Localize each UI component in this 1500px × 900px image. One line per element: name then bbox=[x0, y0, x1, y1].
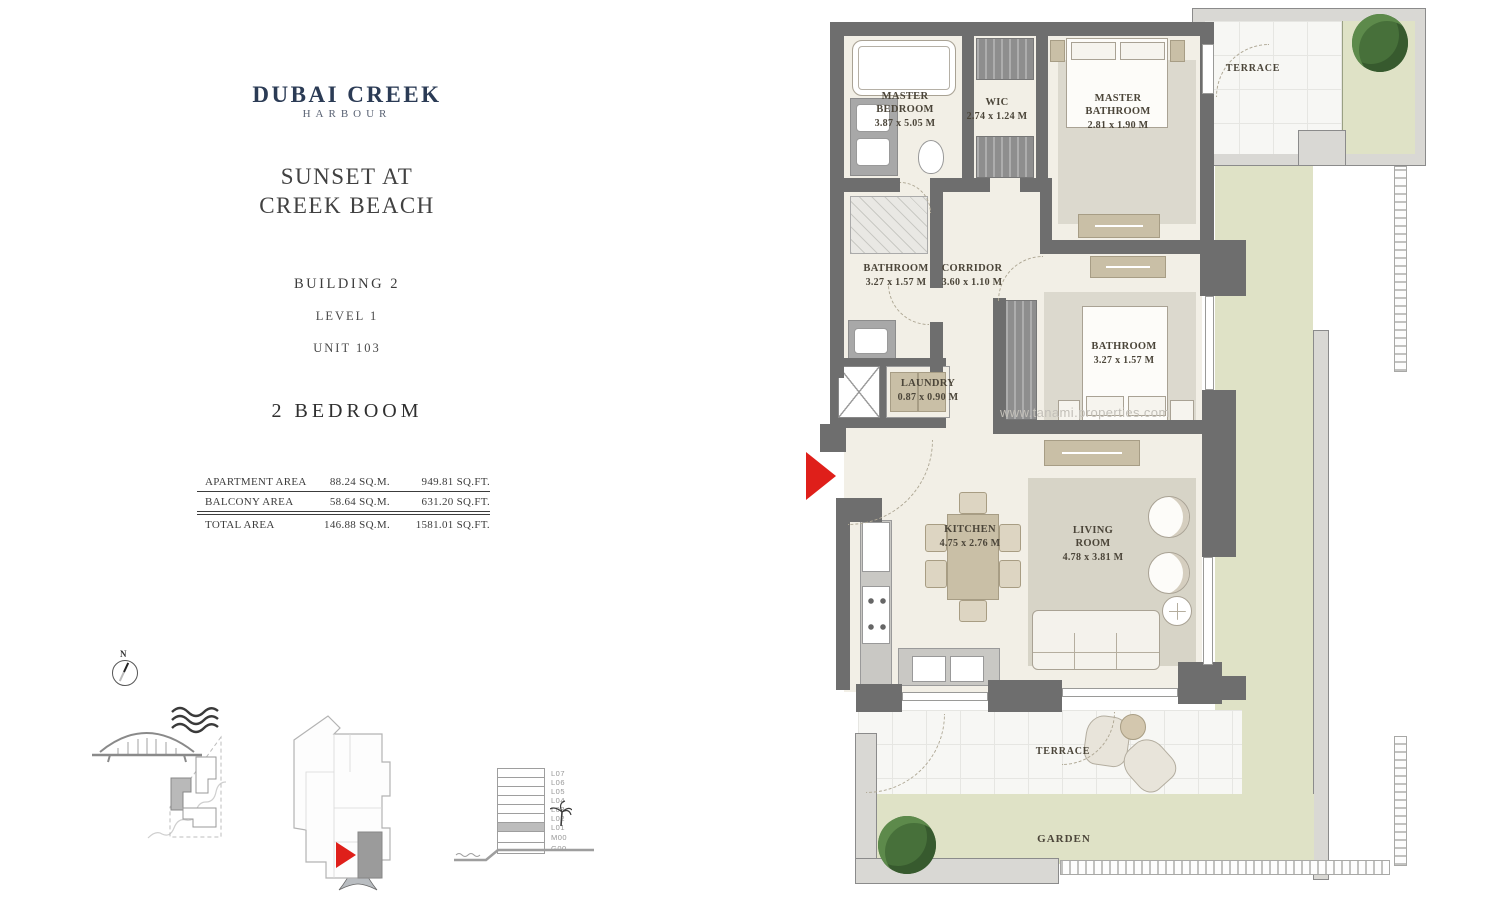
compass-north-label: N bbox=[120, 649, 127, 659]
room-label-bathroom-2: BATHROOM 3.27 x 1.57 M bbox=[1079, 340, 1169, 367]
room-dims: 0.87 x 0.90 M bbox=[878, 391, 978, 404]
room-name: WIC bbox=[957, 96, 1037, 109]
row-sqft: 631.20 SQ.FT. bbox=[390, 496, 490, 508]
room-dims: 2.81 x 1.90 M bbox=[1068, 119, 1168, 132]
room-label-wic: WIC 2.74 x 1.24 M bbox=[957, 96, 1037, 123]
table-row: TOTAL AREA 146.88 SQ.M. 1581.01 SQ.FT. bbox=[197, 514, 490, 534]
room-name: GARDEN bbox=[1024, 833, 1104, 846]
chair-icon bbox=[959, 600, 987, 622]
key-plan bbox=[284, 712, 406, 892]
nightstand-icon bbox=[1050, 40, 1065, 62]
room-label-corridor: CORRIDOR 3.60 x 1.10 M bbox=[924, 262, 1020, 289]
row-sqm: 58.64 SQ.M. bbox=[323, 496, 390, 508]
floor-plan-page: DUBAI CREEK HARBOUR SUNSET AT CREEK BEAC… bbox=[0, 0, 1500, 900]
railing bbox=[1394, 736, 1407, 866]
sink-icon bbox=[950, 656, 984, 682]
wall-pier bbox=[820, 424, 846, 452]
toilet-icon bbox=[918, 140, 944, 174]
chair-icon bbox=[959, 492, 987, 514]
wall-pier bbox=[1216, 676, 1246, 700]
nightstand-icon bbox=[1170, 40, 1185, 62]
wall-segment bbox=[930, 322, 943, 372]
nightstand-icon bbox=[1170, 400, 1194, 422]
row-label: APARTMENT AREA bbox=[197, 476, 323, 488]
room-label-master-bedroom: MASTER BEDROOM 3.87 x 5.05 M bbox=[860, 90, 950, 130]
ground-line bbox=[450, 842, 600, 868]
brand-logo: DUBAI CREEK bbox=[197, 82, 497, 108]
watermark: www.tanami.properties.com bbox=[1000, 405, 1170, 420]
armchair-icon bbox=[1148, 496, 1190, 538]
glass-door bbox=[902, 692, 988, 701]
shaft-icon bbox=[838, 366, 880, 418]
garden-fence-wall bbox=[1313, 330, 1329, 880]
building-footprint bbox=[196, 757, 216, 793]
bush-icon bbox=[878, 816, 936, 874]
entrance-arrow bbox=[806, 452, 836, 500]
wall-segment bbox=[1202, 390, 1236, 557]
garden-floor bbox=[876, 794, 1314, 864]
level-label: LEVEL 1 bbox=[197, 309, 497, 324]
glass-door bbox=[1203, 557, 1213, 665]
project-title-line2: CREEK BEACH bbox=[197, 193, 497, 219]
room-name: MASTER BATHROOM bbox=[1068, 92, 1168, 118]
dresser-icon bbox=[1078, 214, 1160, 238]
wall-segment bbox=[830, 22, 844, 378]
unit-type-label: 2 BEDROOM bbox=[197, 400, 497, 423]
railing bbox=[1060, 860, 1390, 875]
row-sqft: 1581.01 SQ.FT. bbox=[390, 519, 490, 531]
unit-location-highlight bbox=[358, 832, 382, 878]
pillow-icon bbox=[1071, 42, 1116, 60]
room-name: MASTER BEDROOM bbox=[860, 90, 950, 116]
wall-pier bbox=[1200, 240, 1246, 296]
sink-icon bbox=[854, 328, 888, 354]
table-row: APARTMENT AREA 88.24 SQ.M. 949.81 SQ.FT. bbox=[197, 472, 490, 492]
bathtub-icon bbox=[852, 40, 956, 96]
row-sqm: 88.24 SQ.M. bbox=[323, 476, 390, 488]
area-table: APARTMENT AREA 88.24 SQ.M. 949.81 SQ.FT.… bbox=[197, 472, 490, 534]
room-name: KITCHEN bbox=[915, 523, 1025, 536]
room-dims: 3.60 x 1.10 M bbox=[924, 276, 1020, 289]
compass-icon bbox=[112, 660, 138, 686]
wall-segment bbox=[930, 178, 990, 192]
tree-icon bbox=[1352, 14, 1408, 72]
pillow-icon bbox=[1120, 42, 1165, 60]
palm-tree-icon bbox=[550, 800, 572, 828]
sofa-icon bbox=[1032, 610, 1160, 670]
bridge-icon bbox=[92, 733, 202, 762]
wall-segment bbox=[1046, 240, 1214, 254]
room-dims: 3.87 x 5.05 M bbox=[860, 117, 950, 130]
wall-segment bbox=[836, 520, 850, 690]
room-name: LIVING ROOM bbox=[1055, 524, 1131, 550]
row-sqft: 949.81 SQ.FT. bbox=[390, 476, 490, 488]
terrace-step-wall bbox=[1298, 130, 1346, 166]
glass-door bbox=[1062, 688, 1178, 697]
chair-icon bbox=[925, 560, 947, 588]
patio-table-icon bbox=[1120, 714, 1146, 740]
sink-icon bbox=[912, 656, 946, 682]
armchair-icon bbox=[1148, 552, 1190, 594]
project-title-line1: SUNSET AT bbox=[197, 164, 497, 190]
room-name: TERRACE bbox=[1023, 745, 1103, 758]
room-label-laundry: LAUNDRY 0.87 x 0.90 M bbox=[878, 377, 978, 404]
room-name: TERRACE bbox=[1213, 62, 1293, 75]
side-table-icon bbox=[1162, 596, 1192, 626]
stove-icon bbox=[862, 586, 890, 644]
wall-segment bbox=[830, 22, 1214, 36]
room-dims: 4.75 x 2.76 M bbox=[915, 537, 1025, 550]
room-dims: 2.74 x 1.24 M bbox=[957, 110, 1037, 123]
tv-console-icon bbox=[1044, 440, 1140, 466]
building-label: BUILDING 2 bbox=[197, 276, 497, 293]
brand-logo-sub: HARBOUR bbox=[197, 108, 497, 120]
water-waves-icon bbox=[172, 708, 218, 732]
chair-icon bbox=[999, 560, 1021, 588]
table-row: BALCONY AREA 58.64 SQ.M. 631.20 SQ.FT. bbox=[197, 492, 490, 512]
wall-pier bbox=[856, 684, 902, 712]
room-name: BATHROOM bbox=[1079, 340, 1169, 353]
room-name: LAUNDRY bbox=[878, 377, 978, 390]
room-dims: 4.78 x 3.81 M bbox=[1055, 551, 1131, 564]
row-label: TOTAL AREA bbox=[197, 519, 323, 531]
railing bbox=[1394, 166, 1407, 372]
room-label-terrace-bottom: TERRACE bbox=[1023, 745, 1103, 758]
unit-label: UNIT 103 bbox=[197, 341, 497, 356]
closet-icon bbox=[976, 136, 1034, 178]
fridge-icon bbox=[862, 522, 890, 572]
sink-icon bbox=[856, 138, 890, 166]
building-footprint-highlighted bbox=[171, 778, 191, 810]
window bbox=[1205, 296, 1214, 390]
room-name: CORRIDOR bbox=[924, 262, 1020, 275]
dresser-icon bbox=[1090, 256, 1166, 278]
room-label-master-bathroom: MASTER BATHROOM 2.81 x 1.90 M bbox=[1068, 92, 1168, 132]
room-label-terrace-top: TERRACE bbox=[1213, 62, 1293, 75]
closet-icon bbox=[976, 38, 1034, 80]
wall-pier bbox=[988, 680, 1062, 712]
wall-segment bbox=[844, 178, 900, 192]
wall-segment bbox=[1036, 36, 1048, 178]
room-label-living-room: LIVING ROOM 4.78 x 3.81 M bbox=[1055, 524, 1131, 564]
room-dims: 3.27 x 1.57 M bbox=[1079, 354, 1169, 367]
room-label-kitchen: KITCHEN 4.75 x 2.76 M bbox=[915, 523, 1025, 550]
room-label-garden: GARDEN bbox=[1024, 833, 1104, 846]
row-sqm: 146.88 SQ.M. bbox=[323, 519, 390, 531]
row-label: BALCONY AREA bbox=[197, 496, 323, 508]
building-footprint bbox=[183, 808, 216, 827]
level-label: M00 bbox=[551, 833, 567, 842]
wall-segment bbox=[993, 420, 1202, 434]
